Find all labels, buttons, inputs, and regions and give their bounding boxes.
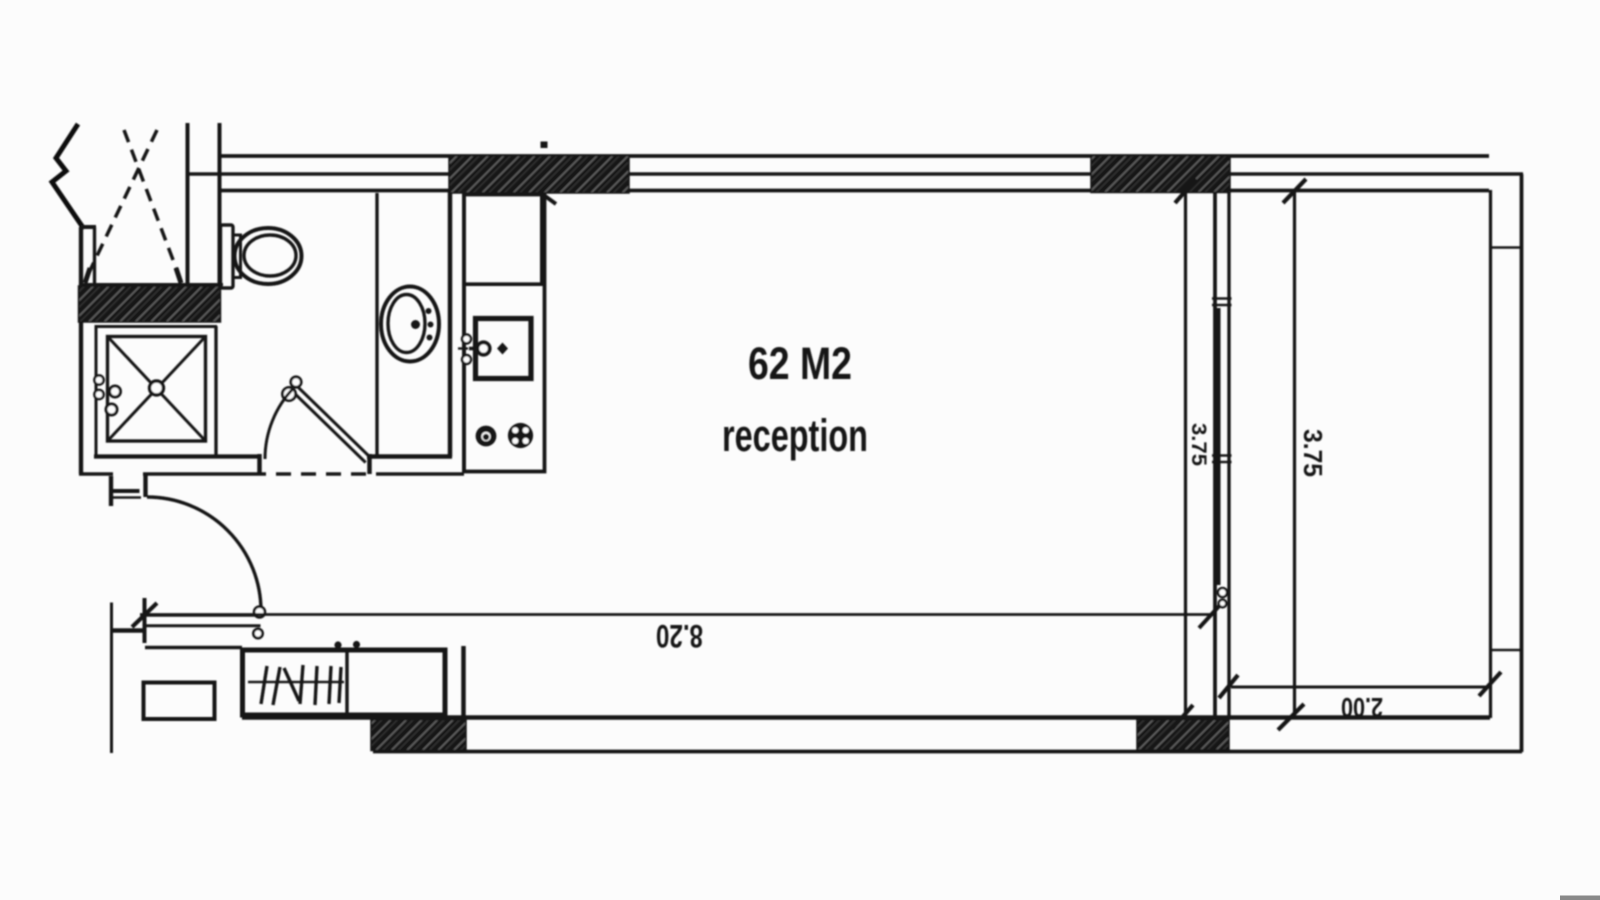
svg-text:8.20: 8.20 [656,618,703,654]
svg-text:3.75: 3.75 [1187,423,1210,466]
svg-text:2.00: 2.00 [1341,692,1383,723]
svg-text:62 M2: 62 M2 [748,338,852,389]
svg-text:3.75: 3.75 [1298,429,1328,477]
svg-text:reception: reception [722,410,868,461]
